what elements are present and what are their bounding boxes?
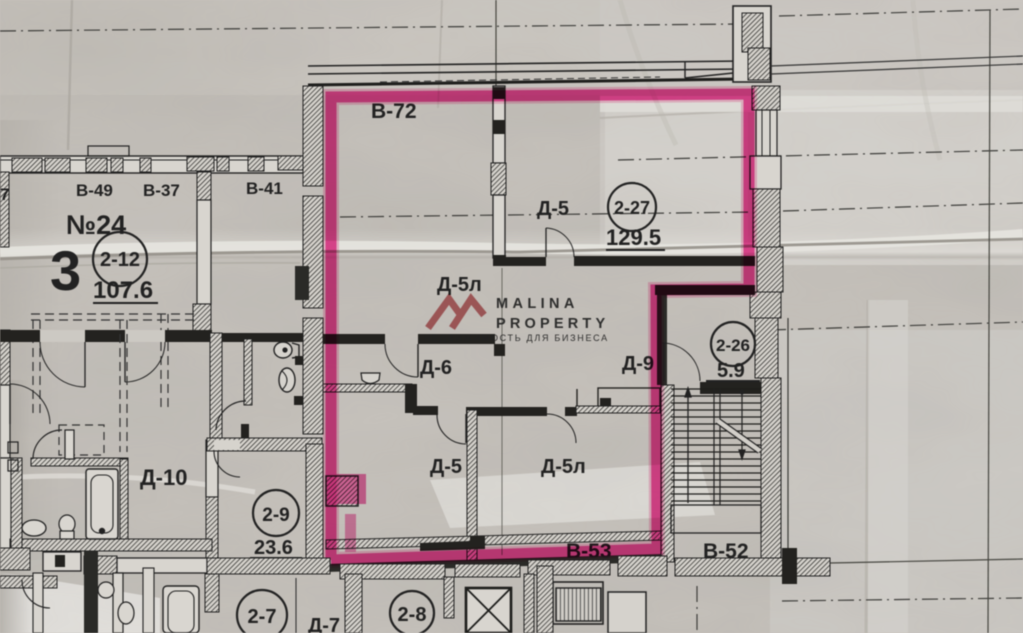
svg-text:129.5: 129.5 (606, 225, 661, 250)
svg-text:№24: №24 (66, 210, 126, 240)
svg-text:В-37: В-37 (143, 181, 180, 200)
svg-text:7: 7 (0, 185, 9, 204)
svg-text:Д-5л: Д-5л (437, 274, 482, 296)
svg-text:107.6: 107.6 (93, 277, 153, 304)
svg-text:2-7: 2-7 (248, 606, 277, 628)
svg-text:MALINA: MALINA (496, 296, 579, 312)
svg-text:Д-10: Д-10 (140, 465, 187, 490)
svg-text:Д-5: Д-5 (430, 456, 462, 478)
svg-text:2-27: 2-27 (614, 198, 650, 218)
svg-text:В-41: В-41 (246, 179, 283, 198)
svg-text:Д-5: Д-5 (537, 198, 569, 220)
svg-text:2-9: 2-9 (262, 505, 289, 526)
svg-text:Д-7: Д-7 (308, 615, 340, 633)
svg-text:Д-6: Д-6 (420, 357, 452, 379)
svg-text:2-12: 2-12 (100, 249, 140, 271)
svg-text:2-26: 2-26 (716, 336, 750, 355)
svg-text:2-8: 2-8 (398, 604, 427, 626)
svg-text:5.9: 5.9 (717, 360, 745, 382)
svg-text:В-49: В-49 (76, 181, 113, 200)
svg-text:PROPERTY: PROPERTY (496, 316, 609, 332)
svg-text:Д-5л: Д-5л (541, 456, 586, 478)
svg-text:23.6: 23.6 (254, 537, 293, 559)
svg-text:НЕДВИЖИМОСТЬ ДЛЯ БИЗНЕСА: НЕДВИЖИМОСТЬ ДЛЯ БИЗНЕСА (424, 333, 609, 343)
svg-text:3: 3 (50, 239, 81, 302)
